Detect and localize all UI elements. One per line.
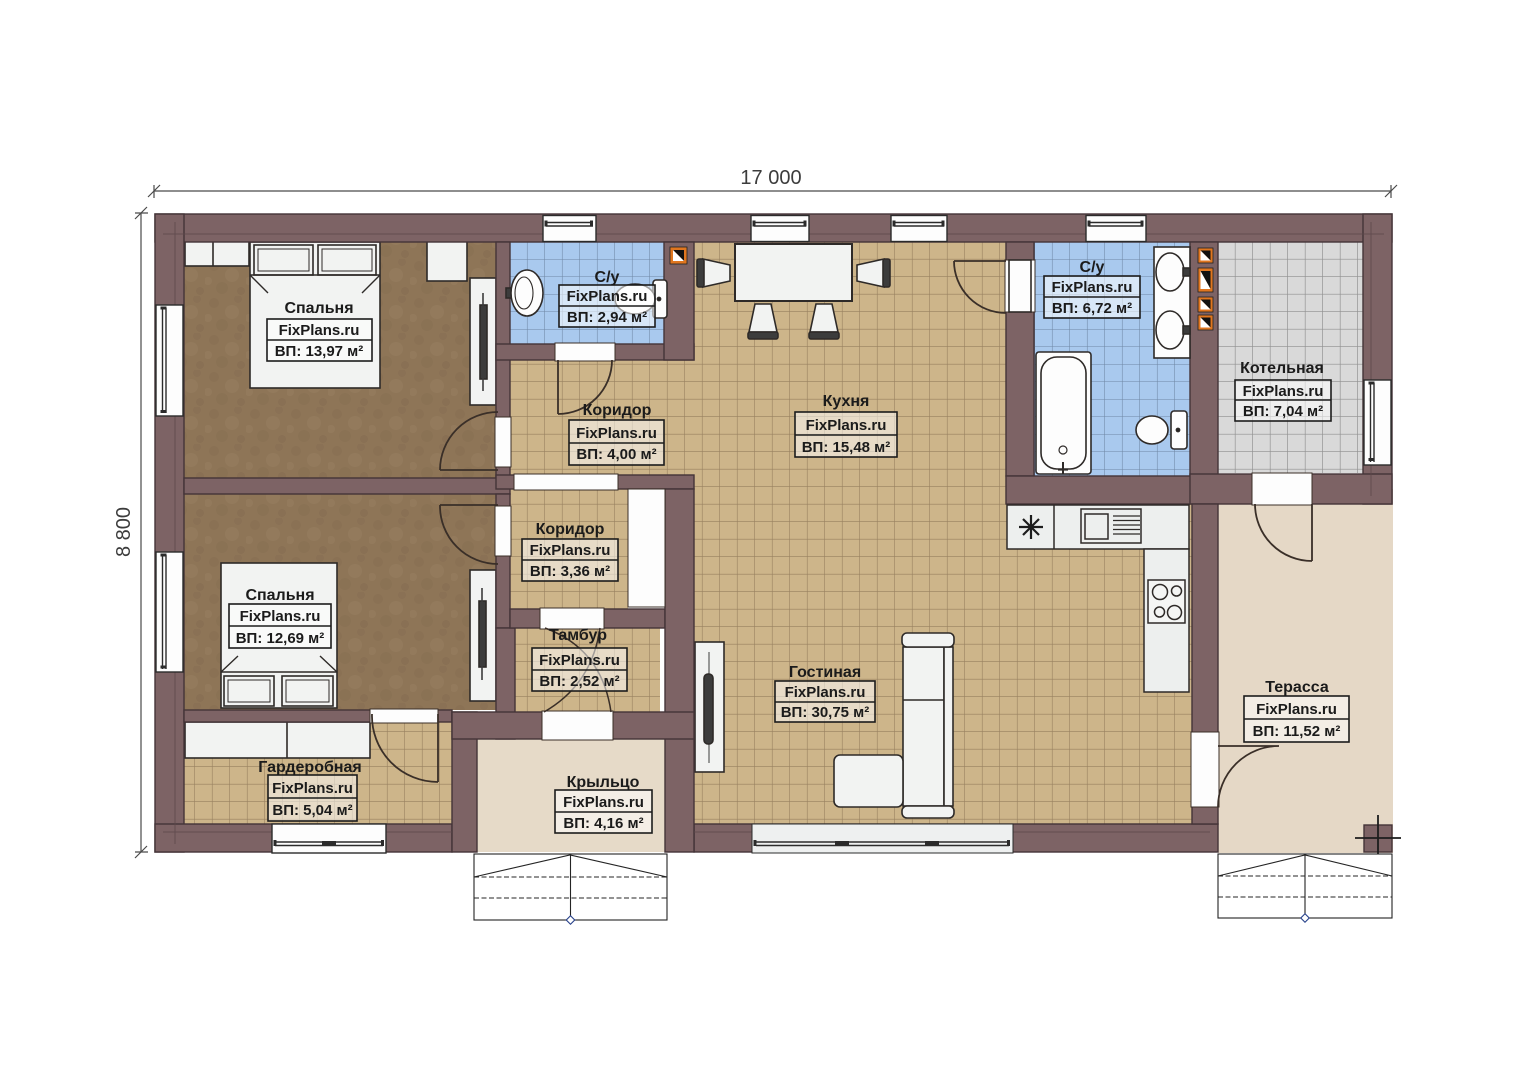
svg-text:FixPlans.ru: FixPlans.ru [240,608,321,625]
svg-text:ВП: 4,16 м²: ВП: 4,16 м² [563,815,643,832]
svg-text:Гостиная: Гостиная [789,664,861,681]
svg-text:FixPlans.ru: FixPlans.ru [279,322,360,339]
svg-text:С/у: С/у [595,269,620,286]
svg-text:ВП: 30,75 м²: ВП: 30,75 м² [781,704,870,721]
svg-text:Крыльцо: Крыльцо [567,774,640,791]
svg-text:С/у: С/у [1080,259,1105,276]
svg-text:ВП: 13,97 м²: ВП: 13,97 м² [275,343,364,360]
svg-text:Гардеробная: Гардеробная [258,759,362,776]
svg-text:FixPlans.ru: FixPlans.ru [539,652,620,669]
svg-text:ВП: 11,52 м²: ВП: 11,52 м² [1253,723,1341,740]
svg-text:ВП: 12,69 м²: ВП: 12,69 м² [236,630,325,647]
svg-text:FixPlans.ru: FixPlans.ru [272,780,353,797]
svg-text:Коридор: Коридор [536,521,605,538]
svg-text:ВП: 15,48 м²: ВП: 15,48 м² [802,439,891,456]
svg-text:Спальня: Спальня [284,300,353,317]
svg-text:ВП: 2,94 м²: ВП: 2,94 м² [567,309,647,326]
svg-text:FixPlans.ru: FixPlans.ru [567,288,648,305]
svg-text:ВП: 4,00 м²: ВП: 4,00 м² [576,446,656,463]
svg-text:ВП: 6,72 м²: ВП: 6,72 м² [1052,300,1132,317]
svg-text:FixPlans.ru: FixPlans.ru [806,417,887,434]
svg-text:FixPlans.ru: FixPlans.ru [1256,701,1337,718]
svg-text:ВП: 2,52 м²: ВП: 2,52 м² [539,673,619,690]
svg-text:FixPlans.ru: FixPlans.ru [530,542,611,559]
svg-text:Тамбур: Тамбур [549,627,607,644]
svg-text:Коридор: Коридор [583,402,652,419]
svg-text:FixPlans.ru: FixPlans.ru [563,794,644,811]
svg-text:FixPlans.ru: FixPlans.ru [1243,383,1324,400]
svg-text:Котельная: Котельная [1240,360,1324,377]
svg-text:Терасса: Терасса [1265,679,1329,696]
svg-text:8 800: 8 800 [113,507,135,557]
svg-text:ВП: 7,04 м²: ВП: 7,04 м² [1243,403,1323,420]
svg-text:ВП: 3,36 м²: ВП: 3,36 м² [530,563,610,580]
svg-text:FixPlans.ru: FixPlans.ru [785,684,866,701]
svg-text:17 000: 17 000 [740,167,801,189]
svg-text:ВП: 5,04 м²: ВП: 5,04 м² [272,802,352,819]
svg-text:Спальня: Спальня [245,587,314,604]
svg-text:Кухня: Кухня [823,393,870,410]
svg-text:FixPlans.ru: FixPlans.ru [576,425,657,442]
svg-text:FixPlans.ru: FixPlans.ru [1052,279,1133,296]
